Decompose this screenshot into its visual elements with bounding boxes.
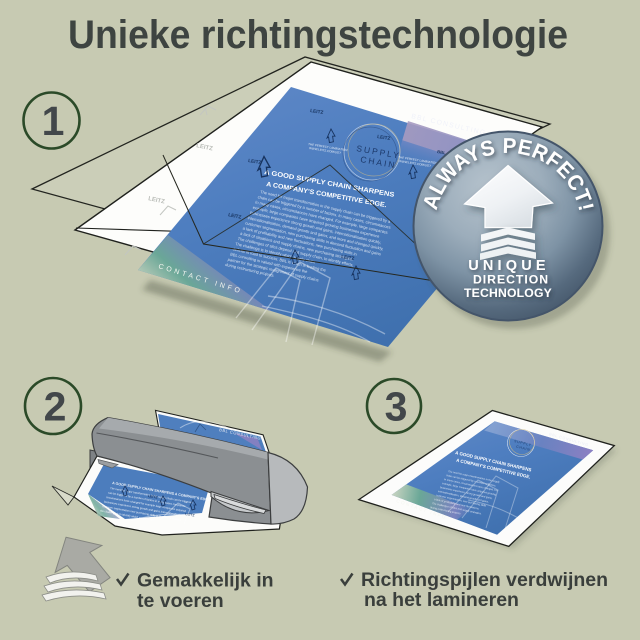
svg-text:DIRECTION: DIRECTION <box>473 273 549 287</box>
svg-text:Richtingspijlen verdwijnen: Richtingspijlen verdwijnen <box>361 569 608 591</box>
svg-text:Gemakkelijk in: Gemakkelijk in <box>137 570 274 592</box>
svg-text:2: 2 <box>44 384 67 430</box>
svg-text:TECHNOLOGY: TECHNOLOGY <box>464 286 552 300</box>
svg-text:te voeren: te voeren <box>137 590 224 612</box>
svg-text:na het lamineren: na het lamineren <box>364 589 519 611</box>
svg-text:3: 3 <box>385 384 408 430</box>
svg-text:1: 1 <box>42 98 65 144</box>
svg-text:Unieke richtingstechnologie: Unieke richtingstechnologie <box>68 13 568 57</box>
